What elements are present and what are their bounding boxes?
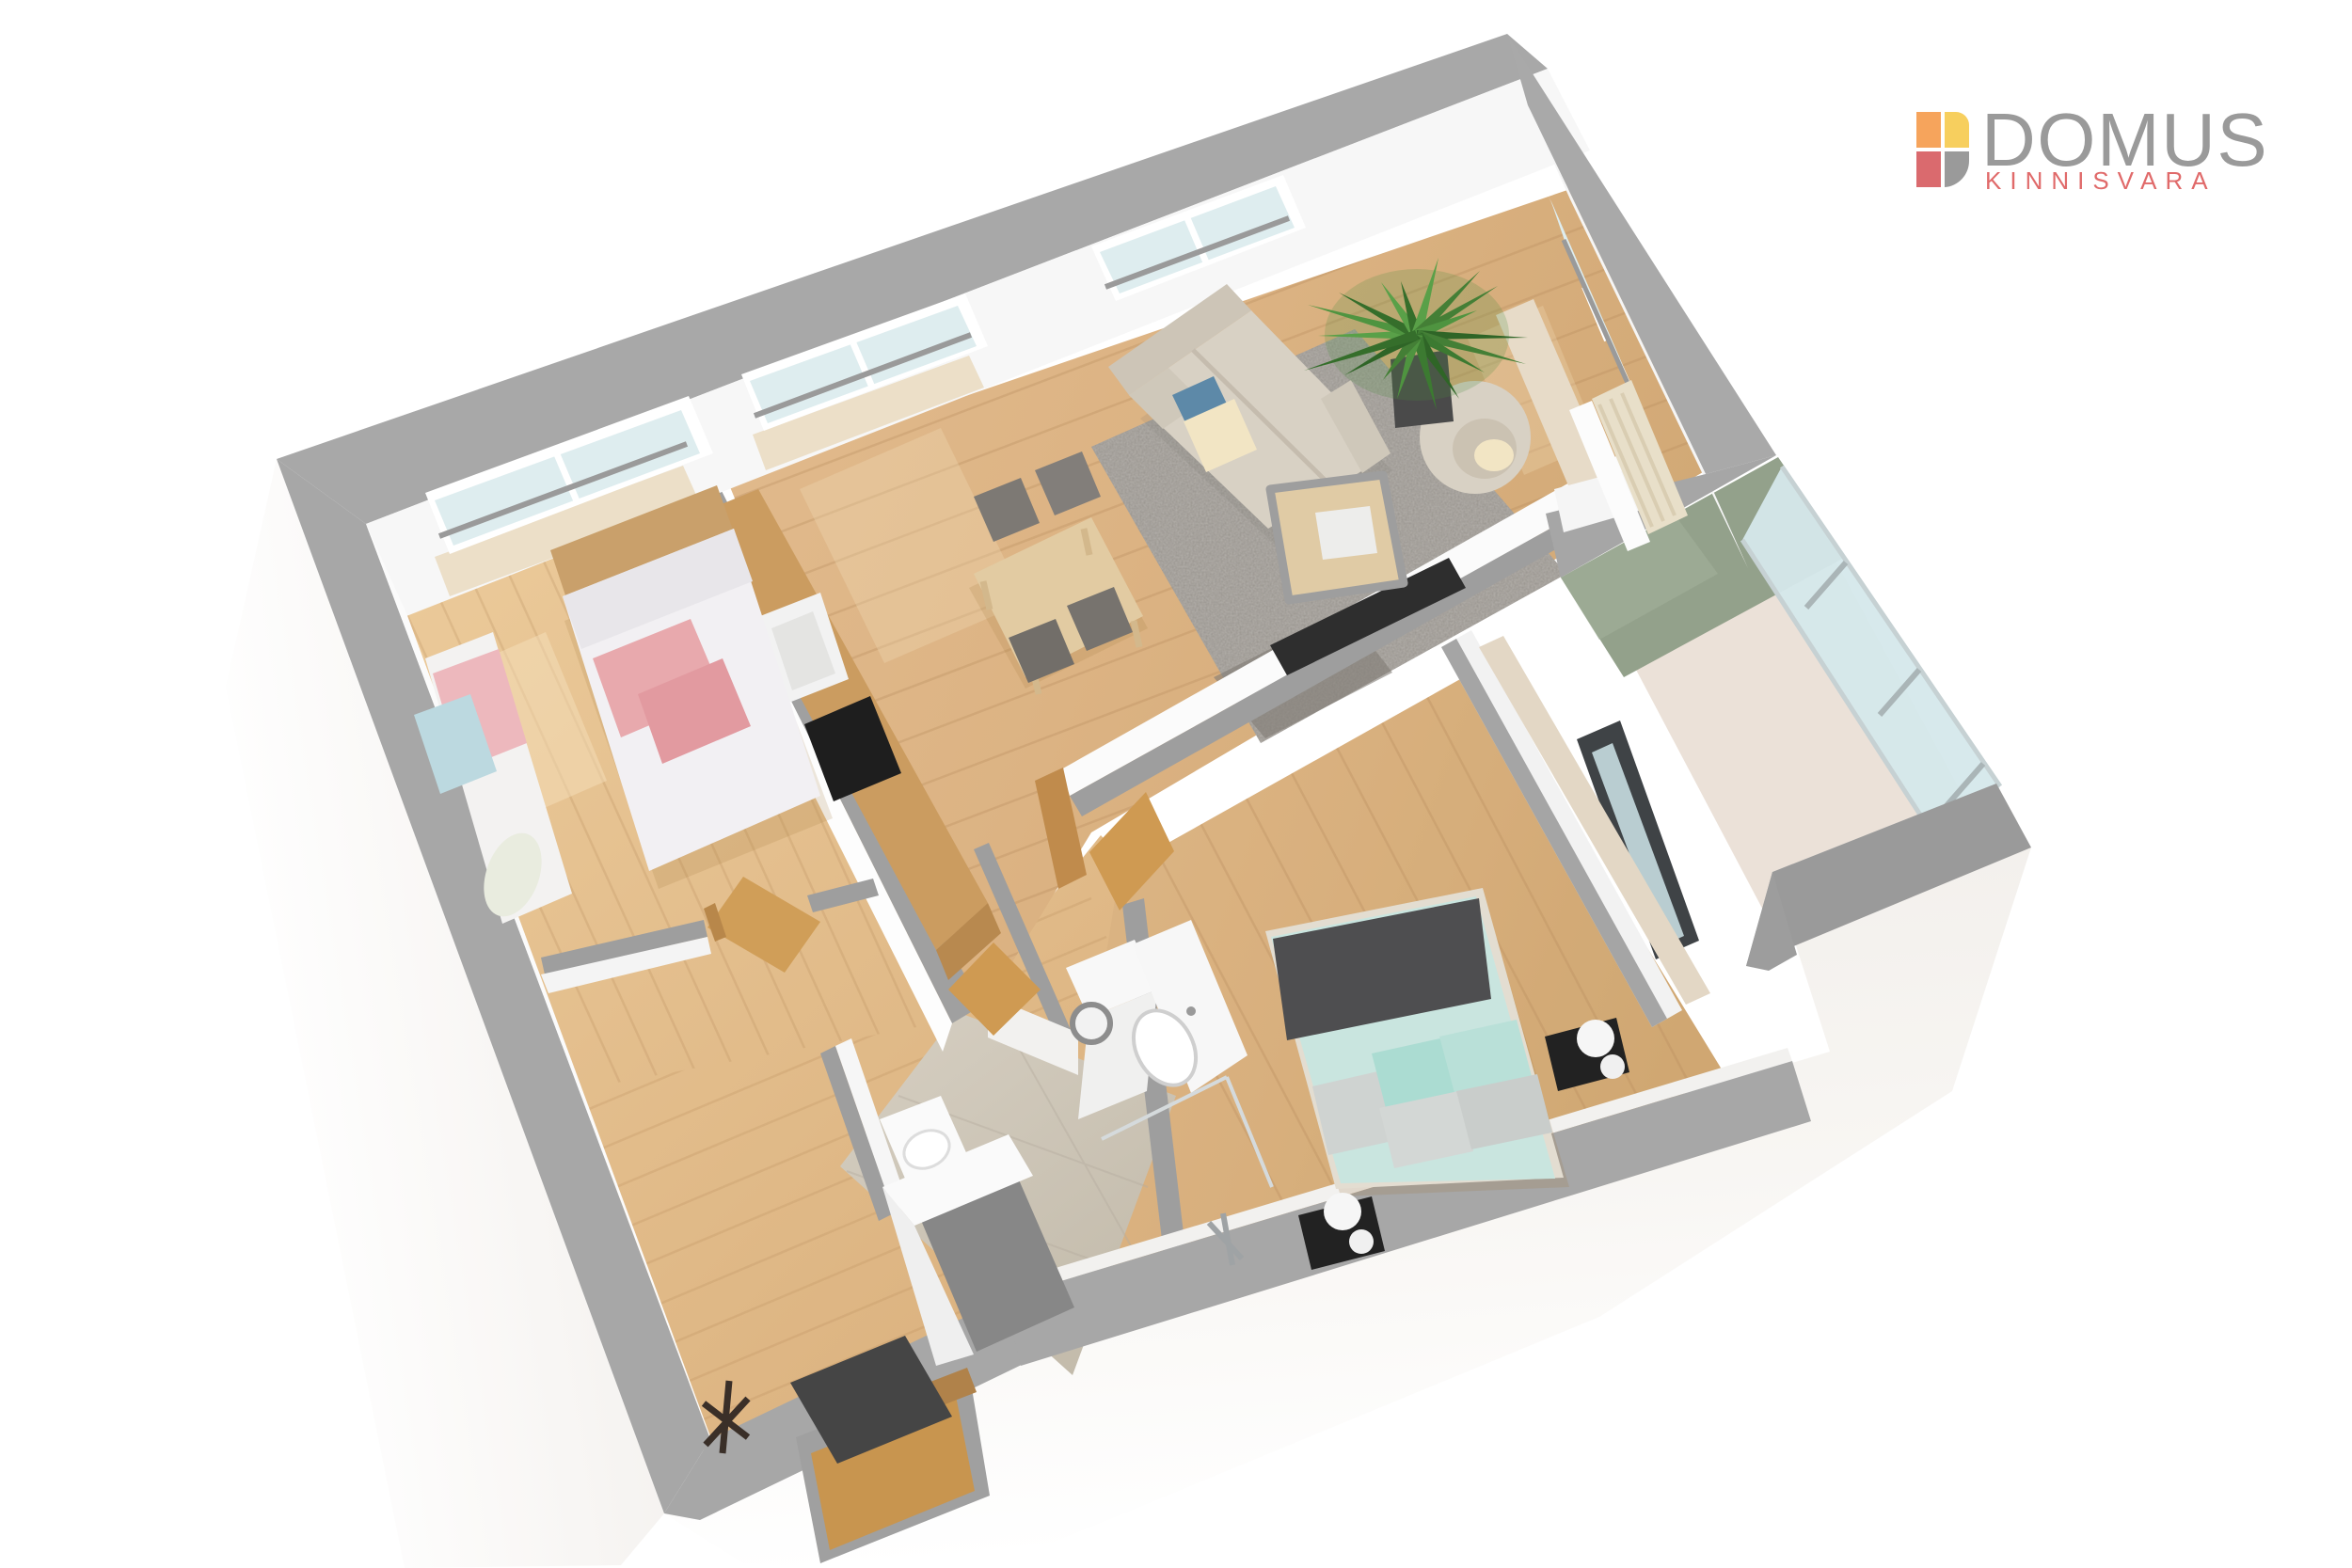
svg-text:KINNISVARA: KINNISVARA	[1985, 166, 2217, 195]
